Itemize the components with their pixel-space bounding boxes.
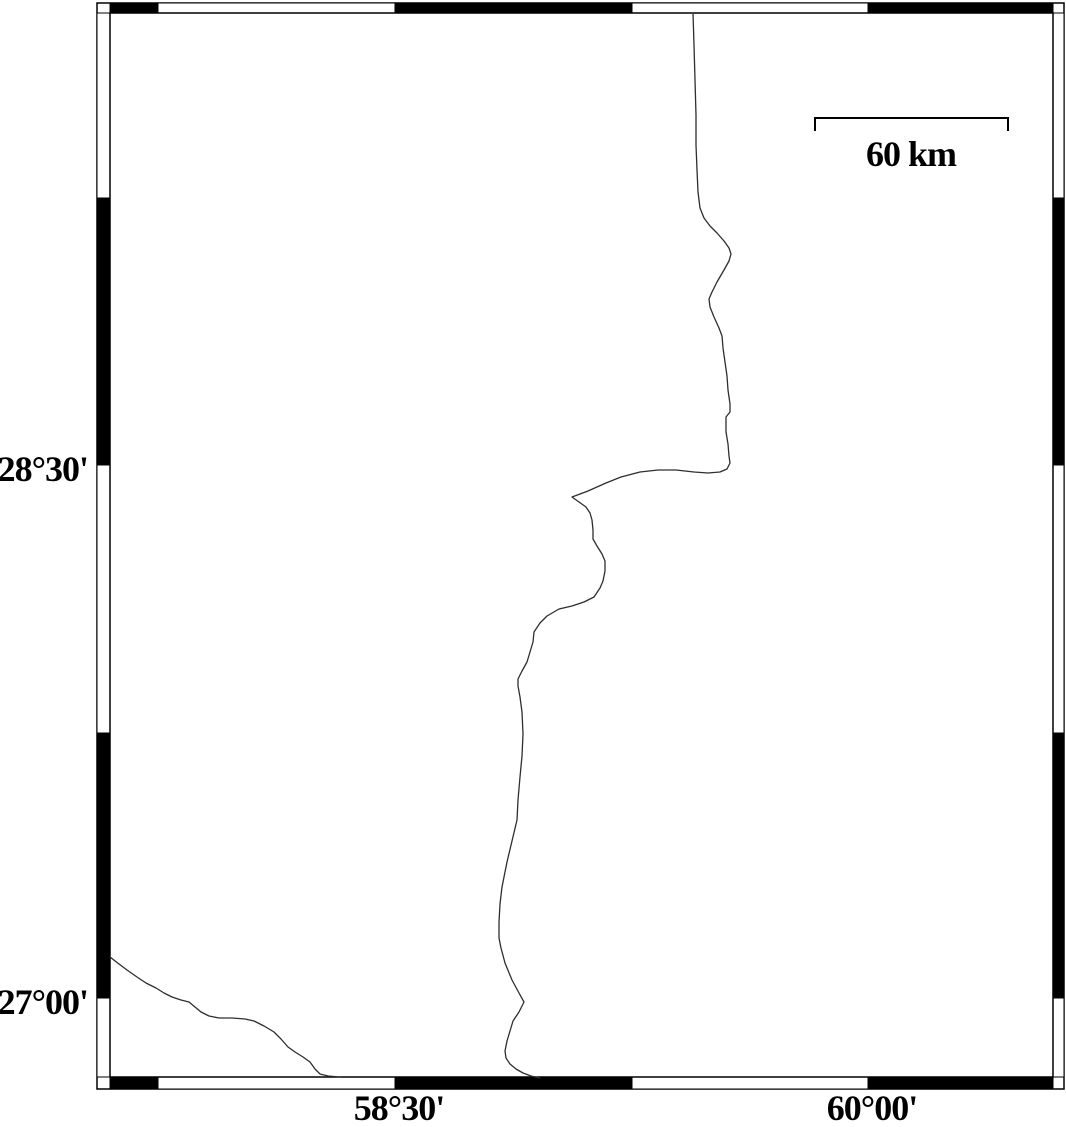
frame-right-segment — [1053, 733, 1064, 998]
frame-top-segment — [158, 3, 395, 13]
longitude-label: 60°00' — [827, 1088, 917, 1127]
frame-top-segment — [395, 3, 632, 13]
latitude-label: 27°00' — [0, 982, 88, 1022]
latitude-label: 28°30' — [0, 449, 88, 489]
map-figure: 60 km 28°30'27°00'58°30'60°00' — [0, 0, 1066, 1127]
frame-right-segment — [1053, 998, 1064, 1077]
frame-right-segment — [1053, 465, 1064, 733]
frame-right-segment — [1053, 13, 1064, 198]
frame-left-segment — [97, 198, 110, 465]
frame-top-segment — [110, 3, 158, 13]
frame-left-segment — [97, 465, 110, 733]
frame-bottom-segment — [110, 1077, 158, 1089]
frame-right-segment — [1053, 198, 1064, 465]
frame-left-segment — [97, 733, 110, 998]
scale-bar-label: 60 km — [866, 134, 957, 174]
frame-top-segment — [632, 3, 868, 13]
map-canvas: 60 km 28°30'27°00'58°30'60°00' — [0, 0, 1066, 1127]
frame-left-segment — [97, 13, 110, 198]
frame-left-segment — [97, 998, 110, 1077]
frame-top-segment — [868, 3, 1053, 13]
longitude-label: 58°30' — [354, 1088, 444, 1127]
